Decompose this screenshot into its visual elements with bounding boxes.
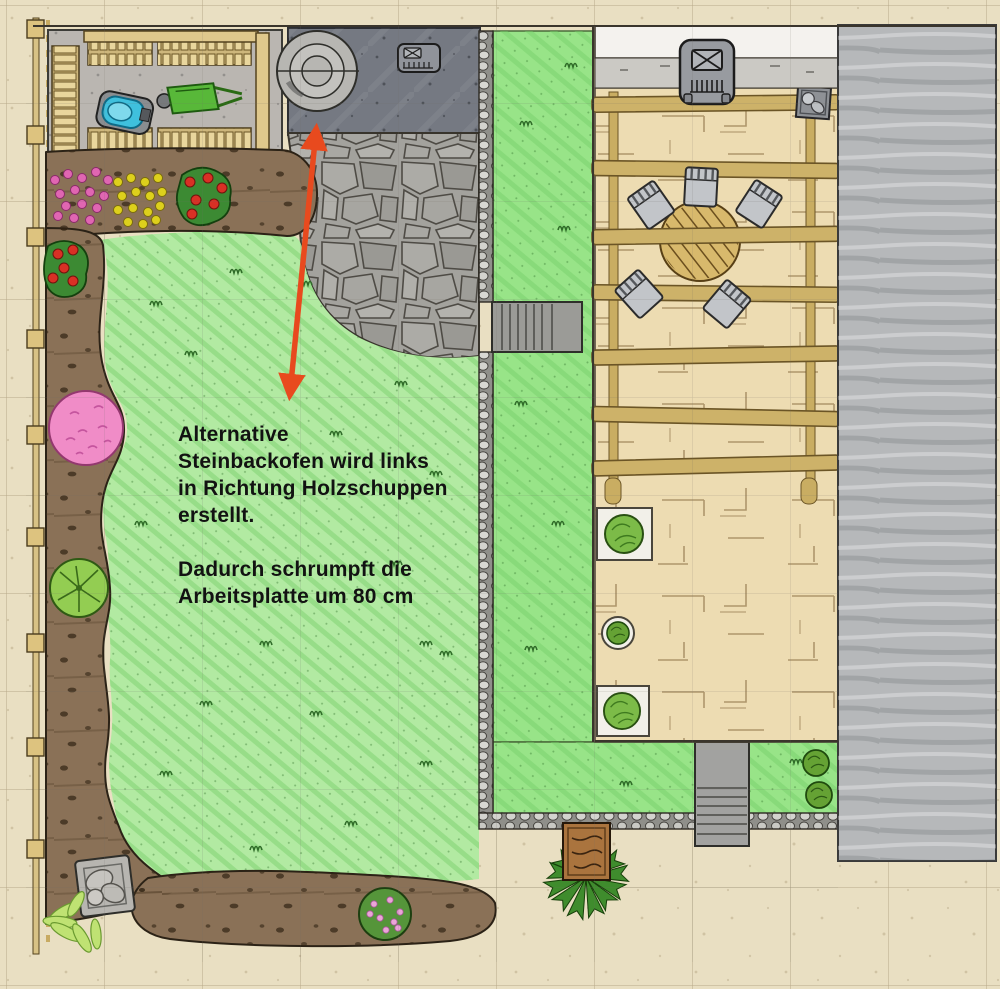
annotation-line: erstellt. (178, 502, 508, 529)
annotation-text: Alternative Steinbackofen wird links in … (178, 421, 508, 610)
building (838, 25, 996, 861)
garden-plan-canvas: Alternative Steinbackofen wird links in … (0, 0, 1000, 989)
annotation-line (178, 529, 508, 556)
annotation-line: Steinbackofen wird links (178, 448, 508, 475)
annotation-line: in Richtung Holzschuppen (178, 475, 508, 502)
annotation-line: Alternative (178, 421, 508, 448)
annotation-line: Arbeitsplatte um 80 cm (178, 583, 508, 610)
annotation-line: Dadurch schrumpft die (178, 556, 508, 583)
